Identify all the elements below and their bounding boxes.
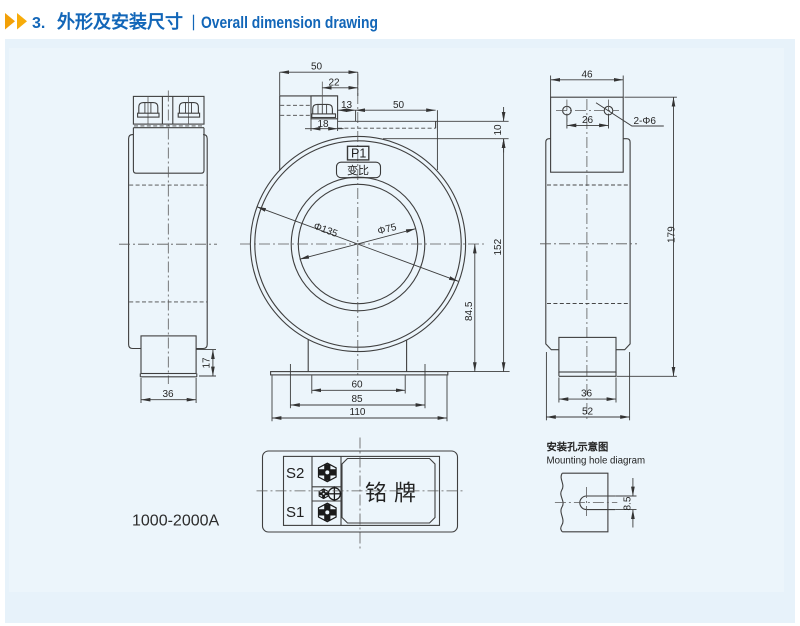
svg-text:52: 52 (582, 406, 594, 417)
svg-text:铭牌: 铭牌 (365, 481, 423, 506)
svg-text:S1: S1 (286, 504, 304, 521)
svg-text:1000-2000A: 1000-2000A (132, 513, 220, 530)
svg-text:84.5: 84.5 (464, 301, 475, 321)
svg-text:2-Φ6: 2-Φ6 (634, 116, 657, 127)
svg-text:50: 50 (311, 62, 323, 73)
svg-text:P1: P1 (351, 146, 366, 160)
svg-text:179: 179 (667, 226, 678, 243)
svg-text:安装孔示意图: 安装孔示意图 (547, 441, 609, 454)
svg-text:S2: S2 (286, 465, 304, 482)
svg-text:22: 22 (329, 77, 341, 88)
svg-text:13: 13 (341, 100, 353, 111)
svg-text:Overall dimension drawing: Overall dimension drawing (201, 14, 378, 32)
svg-text:36: 36 (163, 389, 175, 400)
svg-text:18: 18 (318, 119, 330, 130)
svg-text:Mounting hole diagram: Mounting hole diagram (547, 456, 646, 467)
svg-text:8.5: 8.5 (623, 496, 634, 510)
svg-text:85: 85 (352, 394, 364, 405)
svg-text:变比: 变比 (347, 163, 369, 177)
svg-text:3.外形及安装尺寸｜: 3.外形及安装尺寸｜ (32, 11, 201, 32)
svg-text:110: 110 (350, 407, 366, 418)
svg-text:10: 10 (493, 124, 504, 136)
svg-text:26: 26 (582, 115, 594, 126)
svg-text:36: 36 (581, 388, 593, 399)
svg-text:60: 60 (352, 380, 364, 391)
svg-text:46: 46 (582, 69, 594, 80)
svg-text:152: 152 (493, 238, 504, 255)
svg-text:50: 50 (393, 100, 405, 111)
svg-text:17: 17 (202, 357, 213, 369)
